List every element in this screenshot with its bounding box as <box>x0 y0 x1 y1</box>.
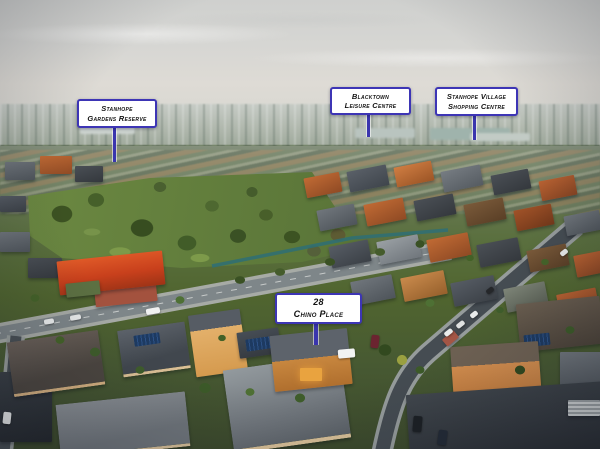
callout-line1: Stanhope Village <box>447 92 506 101</box>
callout-blacktown-leisure-centre: Blacktown Leisure Centre <box>330 87 411 115</box>
house-roof <box>75 166 103 182</box>
house-roof <box>0 196 26 212</box>
callout-line2: Shopping Centre <box>448 102 505 111</box>
maroon-car <box>370 335 380 349</box>
callout-line2: Gardens Reserve <box>87 114 146 123</box>
callout-line2: Leisure Centre <box>345 101 397 110</box>
callout-28-chino-place: 28 Chino Place <box>275 293 362 324</box>
aerial-photo: Stanhope Gardens Reserve Blacktown Leisu… <box>0 0 600 449</box>
dark-car <box>412 416 422 433</box>
pointer-line-reserve <box>113 122 116 162</box>
callout-line2: Chino Place <box>294 309 344 320</box>
callout-line1: Stanhope <box>101 104 132 113</box>
house-roof <box>573 250 600 277</box>
target-house-28-chino-place <box>269 328 352 392</box>
house-roof <box>5 162 35 180</box>
callout-line1: 28 <box>313 297 324 308</box>
lit-garage-door <box>300 368 322 381</box>
car <box>2 412 11 425</box>
house-roof <box>0 232 30 252</box>
white-van <box>338 348 356 358</box>
house-roof <box>40 156 72 174</box>
callout-stanhope-gardens-reserve: Stanhope Gardens Reserve <box>77 99 157 128</box>
callout-stanhope-village-shopping-centre: Stanhope Village Shopping Centre <box>435 87 518 116</box>
patio-awning <box>568 400 600 416</box>
callout-line1: Blacktown <box>352 92 389 101</box>
house-roof <box>117 321 191 377</box>
